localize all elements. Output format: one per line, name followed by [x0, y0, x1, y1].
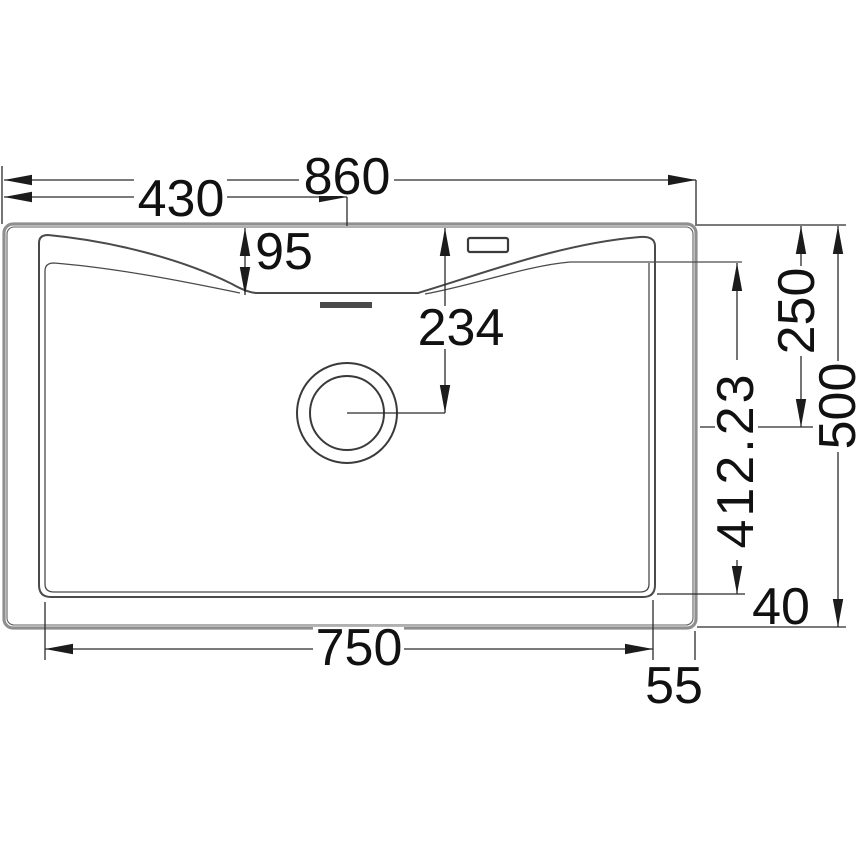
- dim-label-front-ledge-drop: 95: [255, 223, 313, 281]
- arrow-down-icon: [833, 599, 843, 627]
- dim-label-center-from-left: 430: [138, 170, 225, 228]
- basin-outer-rim: [39, 235, 655, 597]
- technical-drawing-canvas: 860 430 95 234 250 412.23 500 40 750 55: [0, 0, 860, 860]
- sink-outer-edge-accent: [7, 227, 693, 625]
- arrow-up-icon: [833, 226, 843, 254]
- arrow-up-icon: [240, 228, 250, 256]
- arrow-right-icon: [668, 175, 696, 185]
- arrow-down-icon: [796, 399, 806, 427]
- dimension-labels: 860 430 95 234 250 412.23 500 40 750 55: [138, 148, 860, 715]
- dim-label-overall-width: 860: [304, 148, 391, 206]
- dim-label-drain-center: 234: [418, 299, 505, 357]
- sink-dimension-drawing: 860 430 95 234 250 412.23 500 40 750 55: [0, 0, 860, 860]
- dim-label-side-gap: 55: [645, 657, 703, 715]
- dim-label-bowl-width: 750: [316, 619, 403, 677]
- dim-label-overall-depth: 500: [809, 363, 860, 450]
- arrow-left-icon: [45, 644, 73, 654]
- sink-body: [4, 224, 696, 628]
- arrow-up-icon: [796, 226, 806, 254]
- basin: [39, 235, 742, 597]
- basin-inner-rim: [45, 263, 649, 592]
- arrow-left-icon: [4, 192, 32, 202]
- arrow-down-icon: [440, 385, 450, 413]
- arrow-left-icon: [4, 175, 32, 185]
- dim-label-upper-right-offset: 250: [768, 268, 826, 355]
- overflow-slot: [468, 238, 508, 252]
- dim-label-bowl-inner-depth: 412.23: [707, 371, 765, 548]
- arrow-down-icon: [732, 566, 742, 594]
- front-edge-mark: [320, 302, 372, 308]
- arrow-right-icon: [625, 644, 653, 654]
- arrow-up-icon: [440, 228, 450, 256]
- arrow-up-icon: [732, 263, 742, 291]
- dim-label-bottom-gap: 40: [752, 578, 810, 636]
- sink-outer-edge: [4, 224, 696, 628]
